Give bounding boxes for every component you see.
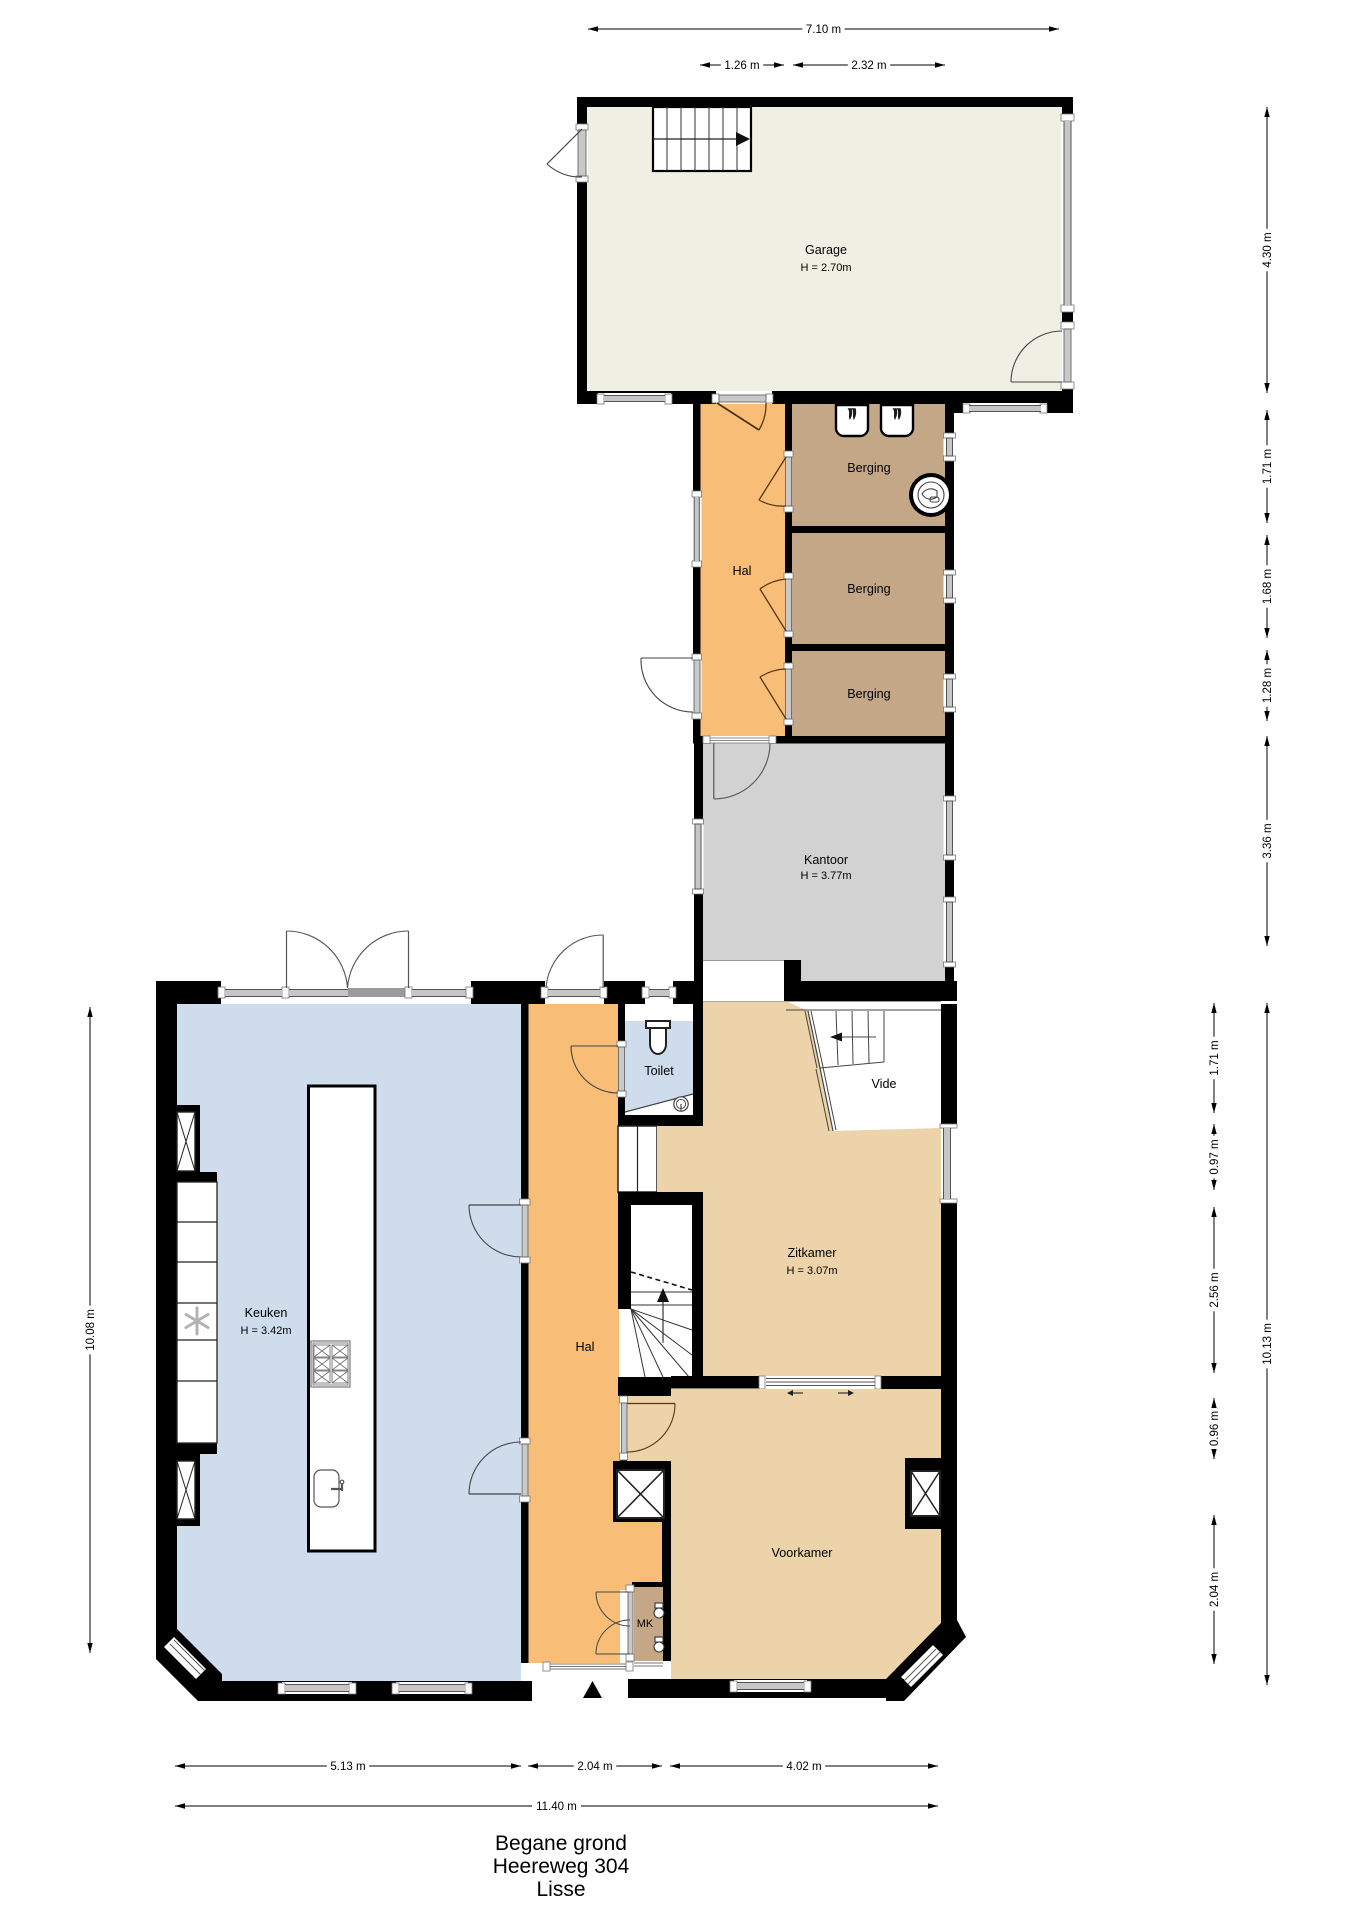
svg-text:H = 3.07m: H = 3.07m bbox=[786, 1265, 837, 1277]
svg-text:H = 3.77m: H = 3.77m bbox=[800, 870, 851, 882]
svg-text:1.71 m: 1.71 m bbox=[1209, 1040, 1221, 1075]
svg-text:Voorkamer: Voorkamer bbox=[772, 1546, 833, 1560]
svg-text:0.97 m: 0.97 m bbox=[1209, 1139, 1221, 1174]
svg-text:7.10 m: 7.10 m bbox=[806, 24, 841, 36]
svg-text:4.02 m: 4.02 m bbox=[786, 1761, 821, 1773]
svg-text:2.04 m: 2.04 m bbox=[1209, 1572, 1221, 1607]
svg-text:11.40 m: 11.40 m bbox=[536, 1801, 577, 1813]
svg-text:Begane grond: Begane grond bbox=[495, 1832, 627, 1855]
svg-text:Heereweg 304: Heereweg 304 bbox=[493, 1855, 630, 1878]
svg-text:Garage: Garage bbox=[805, 243, 847, 257]
svg-text:1.68 m: 1.68 m bbox=[1262, 569, 1274, 604]
svg-text:Kantoor: Kantoor bbox=[804, 853, 848, 867]
svg-text:2.04 m: 2.04 m bbox=[577, 1761, 612, 1773]
svg-text:0.96 m: 0.96 m bbox=[1209, 1411, 1221, 1446]
svg-text:Lisse: Lisse bbox=[536, 1878, 585, 1901]
svg-text:Zitkamer: Zitkamer bbox=[788, 1246, 837, 1260]
svg-text:Berging: Berging bbox=[847, 687, 890, 701]
svg-text:2.32 m: 2.32 m bbox=[851, 60, 886, 72]
svg-text:Vide: Vide bbox=[872, 1077, 897, 1091]
svg-text:H = 2.70m: H = 2.70m bbox=[800, 262, 851, 274]
svg-text:Hal: Hal bbox=[576, 1340, 595, 1354]
svg-text:Berging: Berging bbox=[847, 582, 890, 596]
svg-text:Keuken: Keuken bbox=[245, 1306, 288, 1320]
svg-text:H = 3.42m: H = 3.42m bbox=[240, 1325, 291, 1337]
svg-text:10.13 m: 10.13 m bbox=[1262, 1323, 1274, 1365]
svg-text:MK: MK bbox=[637, 1618, 654, 1630]
svg-text:5.13 m: 5.13 m bbox=[330, 1761, 365, 1773]
svg-text:Toilet: Toilet bbox=[644, 1064, 674, 1078]
svg-text:1.28 m: 1.28 m bbox=[1262, 668, 1274, 703]
svg-text:Hal: Hal bbox=[733, 564, 752, 578]
svg-text:3.36 m: 3.36 m bbox=[1262, 823, 1274, 858]
svg-text:10.08 m: 10.08 m bbox=[85, 1309, 97, 1351]
svg-text:Berging: Berging bbox=[847, 461, 890, 475]
svg-text:1.26 m: 1.26 m bbox=[724, 60, 759, 72]
svg-text:2.56 m: 2.56 m bbox=[1209, 1272, 1221, 1307]
svg-text:1.71 m: 1.71 m bbox=[1262, 449, 1274, 484]
svg-text:4.30 m: 4.30 m bbox=[1262, 232, 1274, 267]
